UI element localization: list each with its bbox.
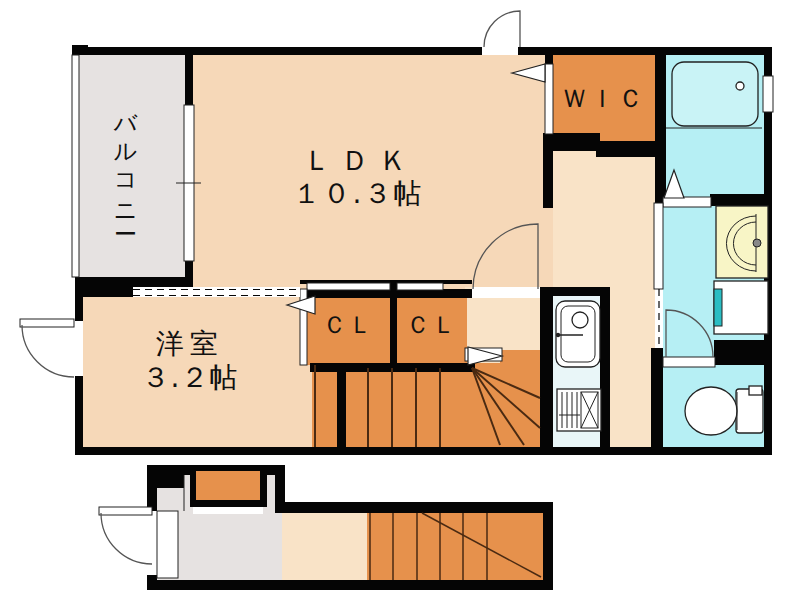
bedroom-door-arc [22, 325, 74, 377]
washing-machine-pan [714, 281, 768, 334]
shoe-cabinet [196, 471, 260, 500]
wall-toilet-left [651, 348, 663, 447]
floor-plan-drawing [0, 0, 800, 609]
kitchen-sink [556, 301, 600, 367]
toilet [685, 386, 763, 435]
wall-bottom [75, 447, 772, 455]
label-ldk-name: ＬＤＫ [270, 147, 450, 175]
entry-door-opening [482, 47, 518, 55]
bedroom-door-opening [75, 321, 83, 376]
label-cl1: ＣＬ [307, 313, 390, 337]
cl1-sliding-panel [307, 283, 390, 290]
entrance-landing [282, 513, 367, 580]
washbasin [716, 206, 768, 278]
floor-plan: バルコニー ＬＤＫ １０.３帖 ＷＩＣ ＣＬ ＣＬ 洋室 ３.２帖 [0, 0, 800, 609]
landing-door-opening [472, 287, 540, 298]
wall-wic-bottom-right [596, 141, 657, 157]
label-room-size: ３.２帖 [105, 364, 275, 392]
wall-wic-bottom-left [543, 133, 600, 151]
hallway [553, 151, 655, 291]
stove [557, 389, 601, 431]
label-ldk-size: １０.３帖 [258, 180, 458, 208]
entry-door-arc [484, 11, 520, 47]
label-wic: ＷＩＣ [553, 86, 655, 111]
wall-ldk-bedroom [83, 287, 133, 297]
wall-stairs-divider [337, 365, 346, 447]
wall-wic-left-top [545, 55, 553, 64]
wall-balcony-bottom [75, 277, 193, 287]
label-room-name: 洋室 [115, 330, 265, 358]
bathtub [666, 62, 762, 128]
wall-lavatory-toilet [714, 340, 764, 365]
wall-wic-right [655, 47, 666, 203]
wall-1f-right [543, 502, 553, 590]
wall-kitchen-left [540, 287, 553, 455]
shoe-cabinet-strip [193, 507, 263, 514]
entrance-door-arc [101, 513, 152, 564]
label-balcony: バルコニー [114, 97, 137, 227]
bathroom-window [763, 76, 773, 112]
cl2-sliding-panel [397, 283, 443, 290]
entrance-door-leaf [99, 507, 152, 515]
stairs-upper-top [500, 350, 540, 368]
wall-kitchen-top [543, 287, 602, 296]
toilet-threshold [663, 357, 715, 367]
wall-cl-divider [390, 283, 397, 365]
label-cl2: ＣＬ [397, 313, 467, 337]
wall-1f-bottom [147, 580, 553, 590]
wall-top-left-corner [72, 45, 88, 55]
lavatory-partition [654, 203, 663, 289]
entrance-door-opening [147, 511, 157, 575]
bedroom-door-leaf [20, 319, 74, 327]
wall-bath-lavatory [710, 194, 764, 206]
wall-1f-top-right [282, 502, 553, 513]
wic-sliding-door [545, 64, 553, 134]
balcony-railing [72, 55, 79, 277]
stairs-upper [312, 363, 540, 447]
entrance-step [157, 511, 178, 578]
wall-balcony-divider-top [185, 55, 193, 107]
